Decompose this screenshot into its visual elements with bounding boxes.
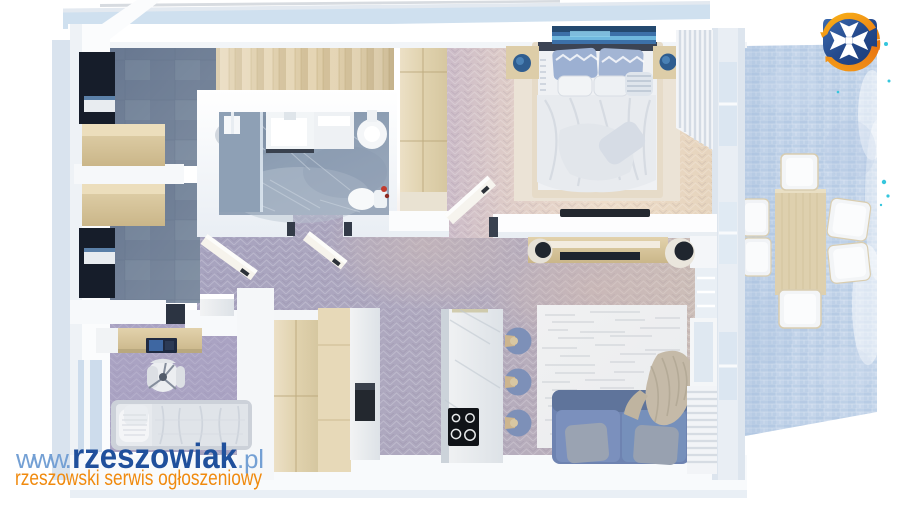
svg-text:rzeszowski serwis ogłoszeniowy: rzeszowski serwis ogłoszeniowy	[15, 467, 262, 490]
